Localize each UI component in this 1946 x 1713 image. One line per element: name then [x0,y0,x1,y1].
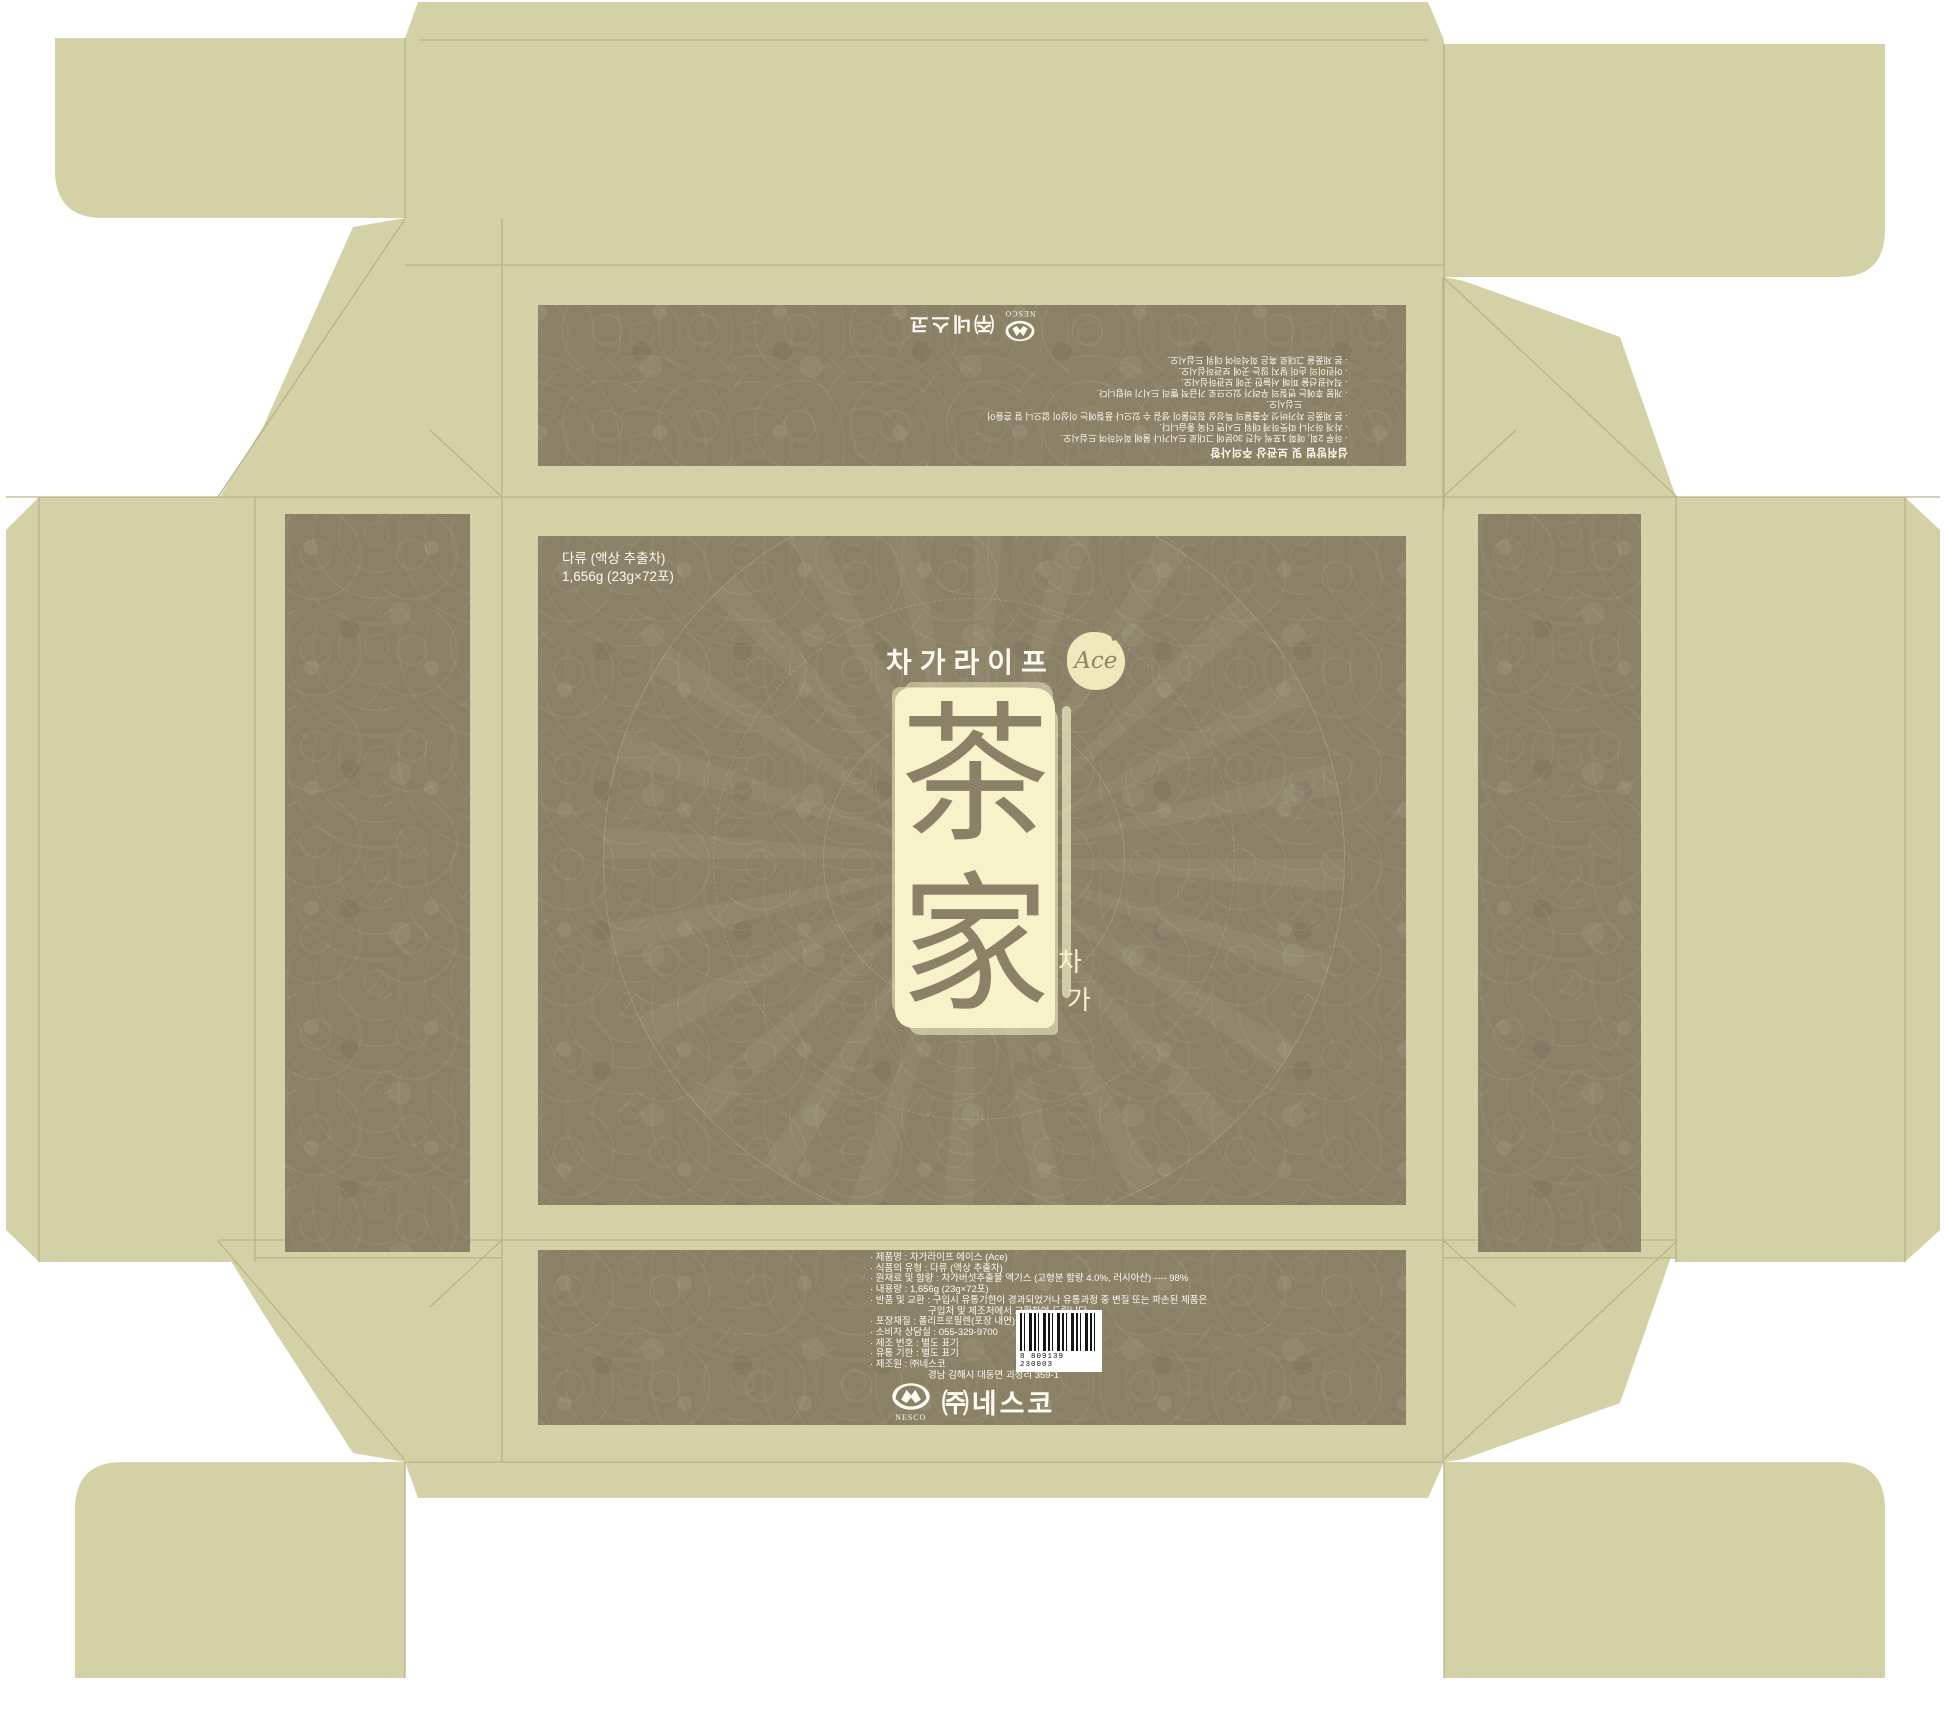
barcode-digits: 8 809139 230003 [1020,1353,1098,1369]
usage-line: · 직사광선을 피해 서늘한 곳에 보관하십시오. [828,376,1348,387]
bottom-right-tab [1444,1462,1885,1678]
product-type-and-weight: 다류 (액상 추출차) 1,656g (23g×72포) [562,550,674,585]
bottom-left-tab [75,1462,405,1678]
hangul-ga: 가 [1067,982,1091,1020]
manufacturer-logo-row: NESCO ㈜네스코 [538,1381,1406,1422]
left-glue-flap [6,497,255,1262]
company-name: ㈜네스코 [942,1382,1056,1421]
usage-line: · 하루 2회, 매회 1포씩 식전 30분에 그대로 드시거나 물에 희석하여… [828,432,1348,443]
bottom-panel-print: · 제품명 : 차가라이프 에이스 (Ace) · 식품의 유형 : 다류 (액… [538,1250,1406,1425]
ace-badge-label: Ace [1074,648,1117,674]
company-name: ㈜네스코 [907,312,994,341]
top-left-tab [55,38,405,218]
packaging-dieline-sheet: 섭취방법 및 보관상 주의사항 · 하루 2회, 매회 1포씩 식전 30분에 … [0,0,1946,1713]
hanja-tea-character: 茶 [895,696,1055,856]
usage-line: · 어린이의 손이 닿지 않는 곳에 보관하십시오. [828,365,1348,376]
top-right-tab [1444,44,1885,277]
ace-badge: Ace [1067,632,1125,690]
info-line: · 반품 및 교환 : 구입시 유통기한이 경과되었거나 유통과정 중 변질 또… [870,1296,1207,1307]
barcode-bars-icon [1020,1313,1098,1351]
brand-row: 차가라이프 Ace [886,632,1125,690]
brand-name: 차가라이프 [886,641,1055,681]
back-panel-print: 섭취방법 및 보관상 주의사항 · 하루 2회, 매회 1포씩 식전 30분에 … [538,305,1406,466]
usage-line: · 개봉 후에는 변질의 우려가 있으므로 가급적 빨리 드시기 바랍니다. [828,387,1348,398]
usage-line: 드십시오. [828,398,1348,409]
nesco-emblem-icon: NESCO [1003,309,1037,343]
right-side-pattern-strip [1478,514,1641,1252]
hangul-side-label: 차 가 [1058,944,1091,1020]
nesco-emblem-icon: NESCO [889,1381,933,1422]
product-type: 다류 (액상 추출차) [562,550,674,568]
nesco-caption: NESCO [895,1413,926,1422]
net-weight: 1,656g (23g×72포) [562,568,674,586]
left-side-pattern-strip [285,514,470,1252]
leaf-icon [1110,631,1123,641]
manufacturer-logo-row: NESCO ㈜네스코 [538,309,1406,343]
usage-line: · 본 제품을 그대로 혹은 희석하여 데워 드십시오. [828,353,1348,364]
usage-caution-heading: 섭취방법 및 보관상 주의사항 [828,445,1348,461]
usage-caution-block: 섭취방법 및 보관상 주의사항 · 하루 2회, 매회 1포씩 식전 30분에 … [828,353,1348,461]
hanja-house-character: 家 [895,866,1055,1026]
usage-line: · 본 제품은 차가버섯 추출물의 특성상 침전물이 생길 수 있으나 품질에는… [828,409,1348,420]
barcode: 8 809139 230003 [1016,1310,1102,1372]
info-line: 경남 김해시 대동면 괴정리 359-1 [870,1371,1207,1382]
hangul-cha: 차 [1058,948,1082,978]
right-glue-flap [1676,497,1940,1262]
main-panel-print: 다류 (액상 추출차) 1,656g (23g×72포) 차가라이프 Ace 茶… [538,536,1406,1205]
nesco-caption: NESCO [1005,309,1036,318]
usage-line: · 차게 하거나 따뜻하게 데워 드시면 더욱 좋습니다. [828,421,1348,432]
